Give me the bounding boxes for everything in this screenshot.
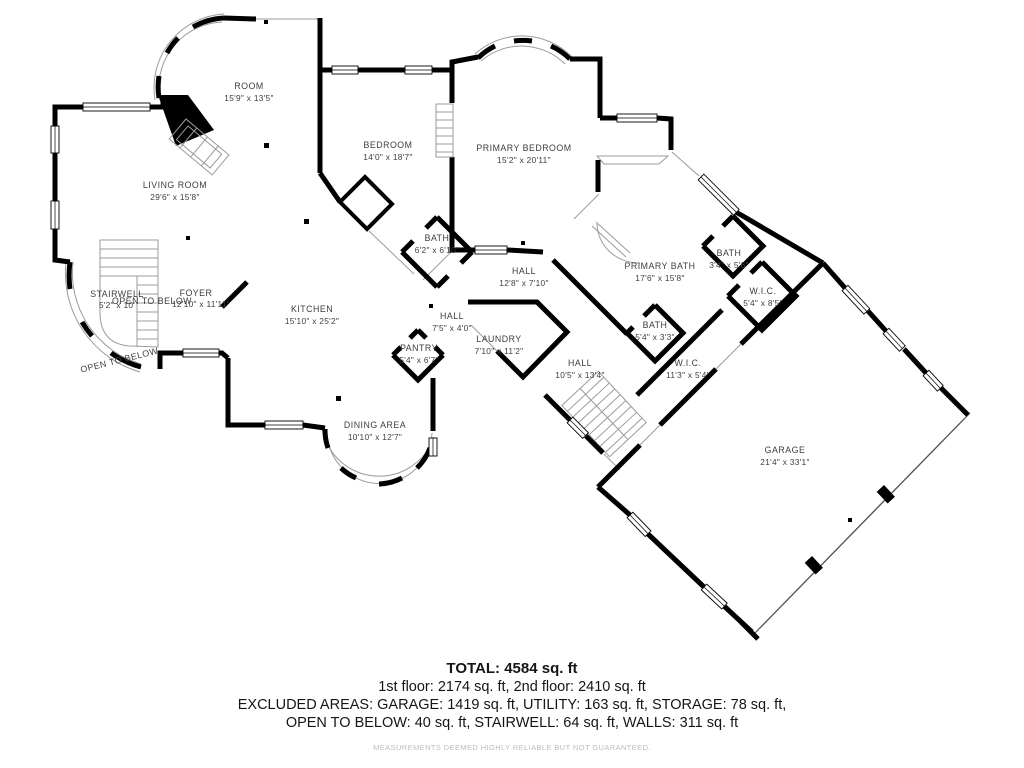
room-label-bath-3: BATH xyxy=(643,320,668,330)
room-dims-bedroom: 14'0" x 18'7" xyxy=(363,152,412,162)
room-dims-primary-bedroom: 15'2" x 20'11" xyxy=(497,155,551,165)
room-label-garage: GARAGE xyxy=(765,445,806,455)
window xyxy=(617,114,657,122)
window xyxy=(842,285,870,314)
room-label-pantry: PANTRY xyxy=(400,343,438,353)
room-label-wic-1: W.I.C. xyxy=(750,286,777,296)
room-label-laundry: LAUNDRY xyxy=(476,334,521,344)
room-dims-bath-2: 3'4" x 5'6" xyxy=(709,260,749,270)
room-label-bath-1: BATH xyxy=(425,233,450,243)
total-area-text: TOTAL: 4584 sq. ft xyxy=(0,660,1024,678)
window xyxy=(701,584,727,609)
room-label-wic-2: W.I.C. xyxy=(675,358,702,368)
window xyxy=(698,174,739,215)
window xyxy=(332,66,358,74)
window xyxy=(475,246,507,254)
room-label-dining-area: DINING AREA xyxy=(344,420,406,430)
room-label-bath-2: BATH xyxy=(717,248,742,258)
room-dims-living-room: 29'6" x 15'8" xyxy=(150,192,199,202)
disclaimer-text: MEASUREMENTS DEEMED HIGHLY RELIABLE BUT … xyxy=(0,743,1024,752)
window xyxy=(923,370,943,391)
room-dims-hall-2: 7'5" x 4'0" xyxy=(432,323,472,333)
room-label-kitchen: KITCHEN xyxy=(291,304,333,314)
summary-footer: TOTAL: 4584 sq. ft 1st floor: 2174 sq. f… xyxy=(0,660,1024,752)
room-label-hall-3: HALL xyxy=(568,358,592,368)
room-label-room: ROOM xyxy=(234,81,263,91)
room-label-living-room: LIVING ROOM xyxy=(143,180,207,190)
room-dims-garage: 21'4" x 33'1" xyxy=(760,457,809,467)
excluded-areas-text-2: OPEN TO BELOW: 40 sq. ft, STAIRWELL: 64 … xyxy=(0,714,1024,732)
room-dims-dining-area: 10'10" x 12'7" xyxy=(348,432,402,442)
hall-stairs xyxy=(562,371,646,456)
floor-plan-page: ROOM 15'9" x 13'5" LIVING ROOM 29'6" x 1… xyxy=(0,0,1024,768)
room-label-primary-bath: PRIMARY BATH xyxy=(624,261,695,271)
room-dims-hall-3: 10'5" x 13'4" xyxy=(555,370,604,380)
window-seat xyxy=(436,104,453,157)
window xyxy=(51,126,59,153)
thin-lines xyxy=(65,14,970,634)
room-label-hall-2: HALL xyxy=(440,311,464,321)
excluded-areas-text-1: EXCLUDED AREAS: GARAGE: 1419 sq. ft, UTI… xyxy=(0,696,1024,714)
window xyxy=(183,349,219,357)
walls xyxy=(55,18,968,639)
window xyxy=(405,66,432,74)
window xyxy=(265,421,303,429)
room-label-bedroom: BEDROOM xyxy=(364,140,413,150)
room-label-hall-1: HALL xyxy=(512,266,536,276)
room-dims-room: 15'9" x 13'5" xyxy=(224,93,273,103)
window xyxy=(429,438,437,456)
floor-plan-drawing: ROOM 15'9" x 13'5" LIVING ROOM 29'6" x 1… xyxy=(0,0,1024,655)
room-dims-laundry: 7'10" x 11'2" xyxy=(475,346,524,356)
window xyxy=(627,512,651,536)
room-dims-pantry: 5'4" x 6'7" xyxy=(399,355,439,365)
room-label-primary-bedroom: PRIMARY BEDROOM xyxy=(476,143,571,153)
room-dims-hall-1: 12'8" x 7'10" xyxy=(499,278,548,288)
window xyxy=(883,328,905,351)
room-dims-wic-2: 11'3" x 5'4" xyxy=(666,370,710,380)
room-dims-wic-1: 5'4" x 8'5" xyxy=(743,298,783,308)
room-dims-foyer: 12'10" x 11'11" xyxy=(172,299,230,309)
room-dims-kitchen: 15'10" x 25'2" xyxy=(285,316,339,326)
floor-areas-text: 1st floor: 2174 sq. ft, 2nd floor: 2410 … xyxy=(0,678,1024,696)
window xyxy=(51,201,59,229)
open-to-below-label-2: OPEN TO BELOW xyxy=(79,346,159,375)
room-dims-primary-bath: 17'6" x 15'8" xyxy=(635,273,684,283)
window xyxy=(83,103,150,111)
room-label-foyer: FOYER xyxy=(180,288,213,298)
room-dims-bath-1: 6'2" x 6'10" xyxy=(415,245,460,255)
room-dims-bath-3: 5'4" x 3'3" xyxy=(635,332,675,342)
